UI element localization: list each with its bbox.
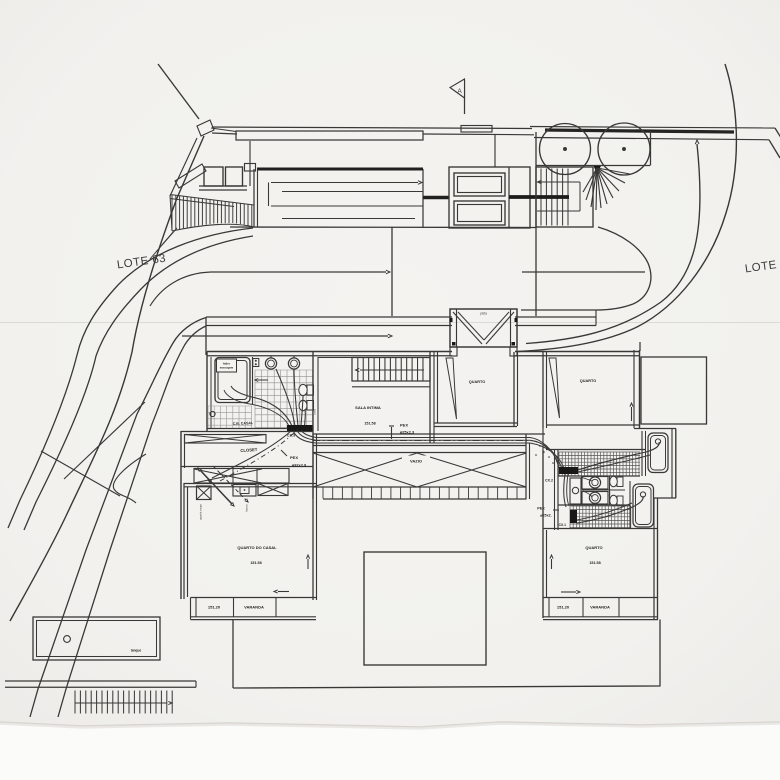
svg-text:VAZIO: VAZIO — [410, 459, 422, 464]
svg-text:CX.2: CX.2 — [545, 479, 553, 483]
svg-text:151.20: 151.20 — [557, 605, 570, 610]
svg-text:QUARTO DO CASAL: QUARTO DO CASAL — [237, 545, 277, 550]
svg-text:PEX: PEX — [537, 507, 545, 511]
svg-text:⌀25x2.: ⌀25x2. — [540, 514, 551, 518]
svg-text:151.20: 151.20 — [208, 605, 221, 610]
svg-text:casal: casal — [313, 409, 317, 415]
svg-text:151.58: 151.58 — [250, 561, 261, 565]
svg-text:QUARTO: QUARTO — [585, 545, 602, 550]
svg-text:⌀25x2.3: ⌀25x2.3 — [400, 430, 415, 435]
svg-text:151.58: 151.58 — [589, 561, 600, 565]
svg-text:PEX: PEX — [290, 455, 298, 460]
svg-text:A: A — [457, 88, 462, 95]
svg-text:VARANDA: VARANDA — [244, 605, 264, 610]
svg-text:PEX: PEX — [400, 423, 408, 428]
svg-text:hidro: hidro — [223, 362, 231, 366]
svg-text:CX.1: CX.1 — [559, 523, 566, 527]
svg-text:banca: banca — [245, 504, 249, 512]
svg-text:pista: pista — [480, 312, 487, 316]
svg-text:QUARTO: QUARTO — [580, 379, 596, 383]
svg-text:massagem: massagem — [220, 367, 234, 370]
svg-text:⌀32x2.9: ⌀32x2.9 — [292, 463, 307, 468]
svg-text:guarda roupa: guarda roupa — [199, 504, 203, 520]
svg-text:SALA INTIMA: SALA INTIMA — [355, 405, 381, 410]
svg-text:VARANDA: VARANDA — [590, 605, 610, 610]
svg-text:tanque: tanque — [131, 649, 142, 653]
svg-text:QUARTO: QUARTO — [469, 380, 485, 384]
svg-text:151.58: 151.58 — [364, 422, 375, 426]
